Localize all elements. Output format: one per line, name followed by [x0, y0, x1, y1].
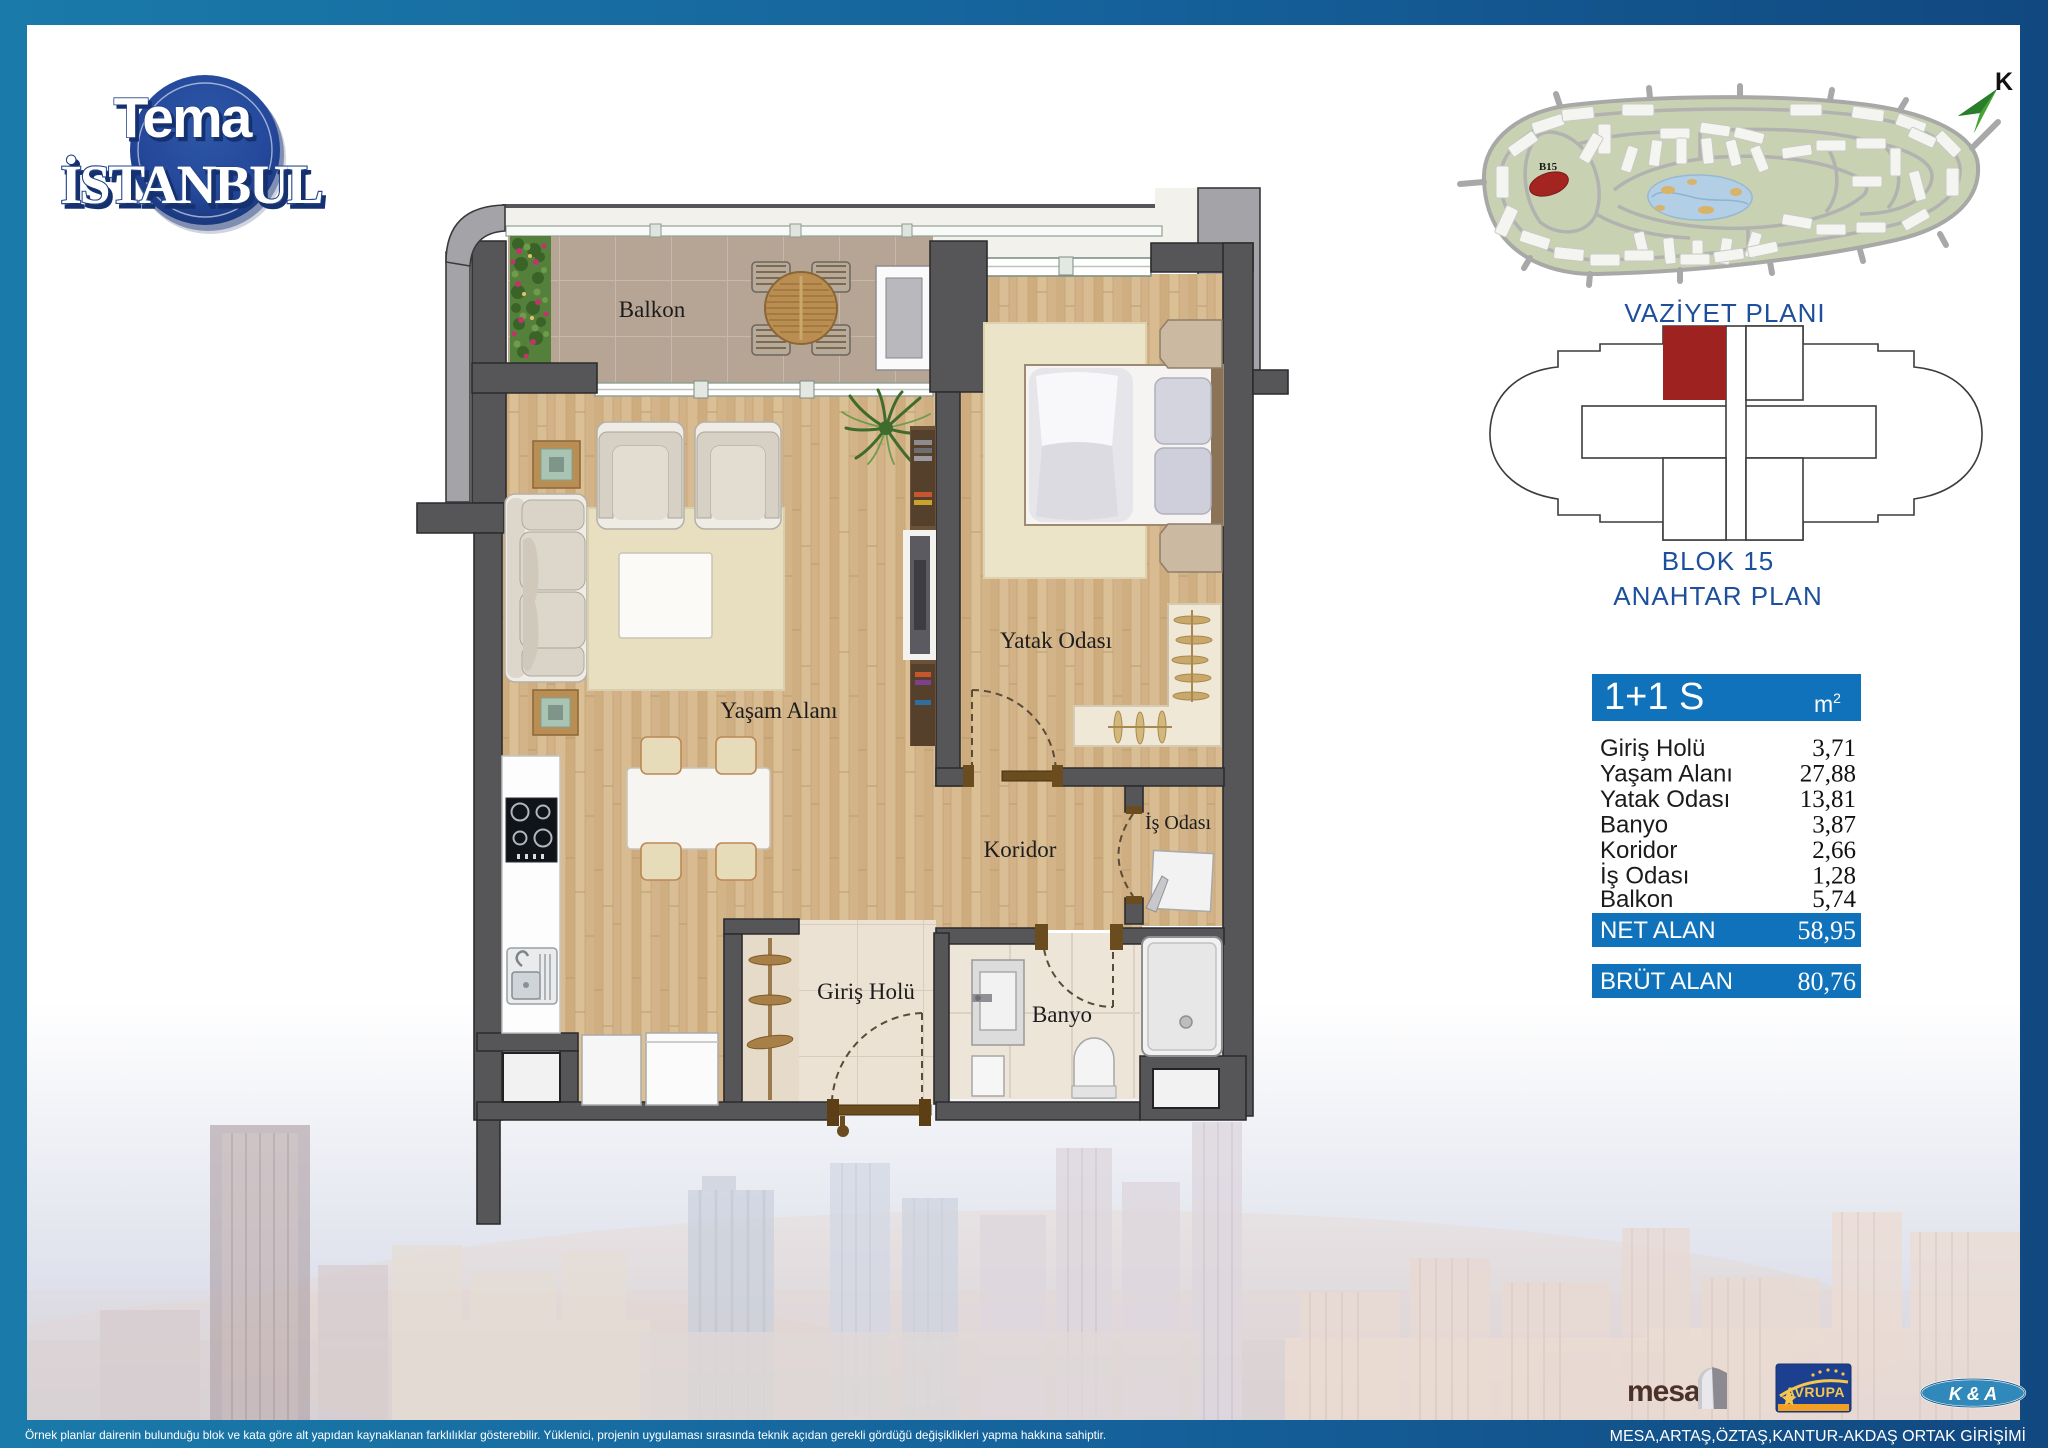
svg-text:27,88: 27,88: [1800, 761, 1856, 788]
svg-text:3,87: 3,87: [1812, 812, 1856, 839]
svg-text:K & A: K & A: [1949, 1384, 1997, 1404]
svg-text:Koridor: Koridor: [1600, 837, 1677, 864]
svg-text:58,95: 58,95: [1798, 916, 1857, 945]
svg-text:Giriş Holü: Giriş Holü: [1600, 735, 1705, 762]
svg-text:BRÜT ALAN: BRÜT ALAN: [1600, 968, 1733, 995]
svg-text:80,76: 80,76: [1798, 967, 1857, 996]
svg-text:Banyo: Banyo: [1032, 1002, 1092, 1027]
svg-text:MESA,ARTAŞ,ÖZTAŞ,KANTUR-AKDAŞ: MESA,ARTAŞ,ÖZTAŞ,KANTUR-AKDAŞ ORTAK GİRİ…: [1610, 1426, 2026, 1445]
svg-text:2,66: 2,66: [1812, 837, 1856, 864]
svg-text:13,81: 13,81: [1800, 786, 1856, 813]
svg-text:İSTANBUL: İSTANBUL: [60, 154, 321, 215]
svg-text:VAZİYET PLANI: VAZİYET PLANI: [1624, 298, 1825, 328]
svg-text:BLOK 15: BLOK 15: [1662, 546, 1775, 576]
svg-text:5,74: 5,74: [1812, 886, 1856, 913]
svg-text:Örnek planlar dairenin bulundu: Örnek planlar dairenin bulunduğu blok ve…: [25, 1428, 1106, 1442]
svg-text:Yatak Odası: Yatak Odası: [1600, 786, 1730, 813]
svg-text:NET ALAN: NET ALAN: [1600, 917, 1716, 944]
svg-text:Giriş Holü: Giriş Holü: [817, 979, 915, 1004]
svg-text:B15: B15: [1539, 161, 1558, 173]
svg-text:Banyo: Banyo: [1600, 812, 1668, 839]
svg-text:Yaşam Alanı: Yaşam Alanı: [720, 698, 837, 723]
svg-text:Balkon: Balkon: [619, 297, 686, 322]
svg-text:Tema: Tema: [114, 86, 254, 150]
svg-text:3,71: 3,71: [1812, 735, 1856, 762]
svg-text:K: K: [1995, 68, 2013, 96]
svg-text:1+1 S: 1+1 S: [1604, 676, 1704, 718]
svg-text:İş Odası: İş Odası: [1145, 811, 1212, 834]
svg-text:Koridor: Koridor: [984, 837, 1057, 862]
svg-text:Yaşam Alanı: Yaşam Alanı: [1600, 761, 1733, 788]
svg-text:Yatak Odası: Yatak Odası: [1000, 628, 1112, 653]
svg-text:mesa: mesa: [1627, 1375, 1701, 1408]
svg-text:Balkon: Balkon: [1600, 886, 1673, 913]
svg-text:ANAHTAR PLAN: ANAHTAR PLAN: [1613, 581, 1822, 611]
